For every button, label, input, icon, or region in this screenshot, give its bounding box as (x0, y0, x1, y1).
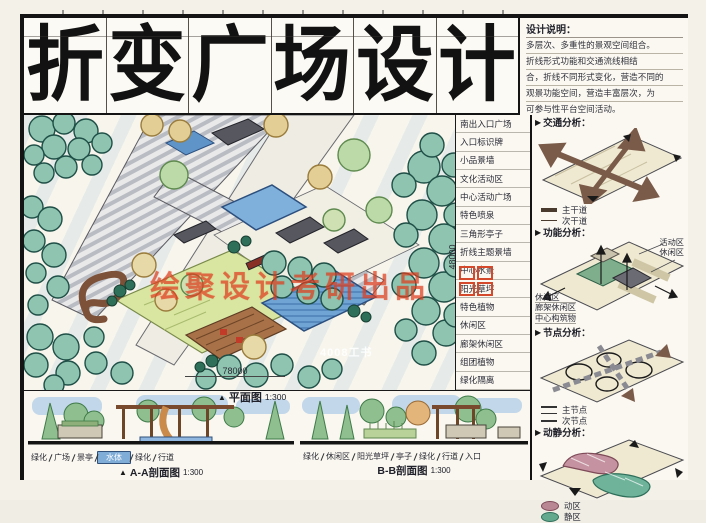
section-marker-icon: ▶ (535, 428, 541, 437)
section-bb-scale: 1:300 (431, 466, 451, 475)
node-sketch-drawing (535, 338, 687, 404)
red-watermark: 绘聚设计考研出品 (150, 262, 570, 306)
plan-scale: 1:300 (265, 392, 286, 402)
ground-label: 绿化 (28, 452, 50, 463)
ground-label: 阳光草坪 (354, 451, 392, 462)
function-right-labels: 活动区 休闲区 (659, 238, 684, 258)
plan-label: 小品景墙 (456, 152, 530, 170)
design-notes-heading: 设计说明： (526, 21, 683, 38)
dynamic-sketch-drawing (535, 438, 687, 500)
design-notes-line: 多层次、多重性的景观空间组合。 (526, 38, 683, 54)
node-analysis-heading: ▶ 节点分析： (535, 326, 686, 338)
section-aa-scale: 1:300 (183, 468, 203, 477)
section-marker-icon: ▶ (535, 328, 541, 337)
plan-title-text: 平面图 (229, 389, 262, 405)
section-marker-icon: ▶ (535, 228, 541, 237)
ground-label: 绿化 (416, 451, 438, 462)
function-analysis-heading: ▶ 功能分析： (535, 226, 686, 238)
ground-label: 入口 (462, 451, 484, 462)
ground-label: 亭子 (393, 451, 415, 462)
plan-label: 文化活动区 (456, 170, 530, 188)
central-structure-label: 中心构筑物 (535, 314, 576, 325)
ground-label: 行道 (155, 452, 177, 463)
static-legend: 静区 (535, 511, 686, 522)
ground-label: 绿化 (132, 452, 154, 463)
dynamic-static-sketch (535, 438, 686, 500)
small-watermark: 4008工书 (320, 344, 372, 360)
section-bb-title: B-B剖面图 1:300 (300, 463, 528, 478)
presentation-board: 折 变 广 场 设 计 设计说明： 多层次、多重性的景观空间组合。 折线形式功能… (0, 0, 706, 500)
master-plan-drawing: 4008工书 (24, 115, 455, 390)
design-notes-line: 折线形式功能和交通流线相结 (526, 54, 683, 70)
section-marker-icon: ▶ (535, 118, 541, 127)
section-bb-labels: 绿化 休闲区 阳光草坪 亭子 绿化 行道 入口 (300, 451, 528, 462)
design-notes-line: 观景功能空间，营造丰富层次，为 (526, 86, 683, 102)
node-legend-primary: 主节点 (535, 404, 686, 415)
secondary-node-swatch (541, 420, 557, 422)
plan-label: 特色喷泉 (456, 207, 530, 225)
function-analysis-title: 功能分析： (543, 225, 591, 239)
ground-label: 绿化 (300, 451, 322, 462)
activity-zone-label: 活动区 (659, 238, 684, 248)
section-aa-labels: 绿化 广场 景亭 水体 绿化 行道 (28, 451, 294, 464)
title-char-cell: 设 (354, 18, 437, 113)
title-char-cell: 折 (24, 18, 107, 113)
plan-label: 折线主题景墙 (456, 243, 530, 261)
triangle-marker-icon: ▲ (119, 468, 127, 477)
triangle-marker-icon: ▲ (218, 393, 226, 402)
design-notes: 设计说明： 多层次、多重性的景观空间组合。 折线形式功能和交通流线相结 合，折线… (518, 18, 688, 115)
traffic-legend-primary: 主干道 (535, 204, 686, 215)
title-char-cell: 广 (189, 18, 272, 113)
leisure-zone-label: 休闲区 (659, 248, 684, 258)
ground-label: 景亭 (74, 452, 96, 463)
plan-title: ▲ 平面图 1:300 (218, 389, 286, 405)
title-band: 折 变 广 场 设 计 (24, 18, 518, 115)
design-notes-line: 合，折线不同形式变化，营造不同的 (526, 70, 683, 86)
title-guideline (24, 36, 518, 37)
plan-label-column: 南出入口广场 入口标识牌 小品景墙 文化活动区 中心活动广场 特色喷泉 三角形亭… (455, 115, 530, 390)
plan-illustration (24, 115, 455, 390)
primary-node-swatch (541, 406, 557, 414)
dynamic-static-analysis-heading: ▶ 动静分析： (535, 426, 686, 438)
primary-road-swatch (541, 208, 557, 212)
water-label: 水体 (97, 451, 131, 464)
plan-width-dimension: 78000 (185, 366, 285, 377)
red-stamp-squares (459, 266, 495, 298)
traffic-analysis-heading: ▶ 交通分析： (535, 116, 686, 128)
plan-label: 休闲区 (456, 317, 530, 335)
plan-height-dimension: 48000 (448, 244, 458, 269)
plan-label: 绿化隔离 (456, 372, 530, 390)
plan-label: 廊架休闲区 (456, 335, 530, 353)
node-analysis-sketch (535, 338, 686, 404)
dynamic-legend: 动区 (535, 500, 686, 511)
section-aa-title-text: A-A剖面图 (130, 465, 180, 480)
dynamic-zone-swatch (541, 501, 559, 511)
section-aa: 绿化 广场 景亭 水体 绿化 行道 ▲ A-A剖面图 1:300 (28, 395, 294, 480)
plan-label: 中心活动广场 (456, 188, 530, 206)
plan-label: 组团植物 (456, 353, 530, 371)
traffic-analysis-title: 交通分析： (543, 115, 591, 129)
traffic-analysis-sketch (535, 128, 686, 204)
traffic-sketch-drawing (535, 128, 687, 204)
ground-label: 行道 (439, 451, 461, 462)
node-analysis-title: 节点分析： (543, 325, 591, 339)
secondary-road-swatch (541, 220, 557, 222)
static-zone-label: 静区 (564, 511, 581, 523)
dynamic-static-title: 动静分析： (543, 425, 591, 439)
title-char-cell: 场 (272, 18, 355, 113)
plan-label: 入口标识牌 (456, 133, 530, 151)
section-bb: 绿化 休闲区 阳光草坪 亭子 绿化 行道 入口 B-B剖面图 1:300 (300, 395, 528, 478)
section-bb-drawing (300, 395, 528, 445)
plan-label: 三角形亭子 (456, 225, 530, 243)
plan-label: 南出入口广场 (456, 115, 530, 133)
section-bb-title-text: B-B剖面图 (377, 463, 427, 478)
static-zone-swatch (541, 512, 559, 522)
title-char-cell: 计 (437, 18, 519, 113)
title-char-cell: 变 (107, 18, 190, 113)
section-aa-title: ▲ A-A剖面图 1:300 (28, 465, 294, 480)
ground-label: 广场 (51, 452, 73, 463)
ground-label: 休闲区 (323, 451, 353, 462)
